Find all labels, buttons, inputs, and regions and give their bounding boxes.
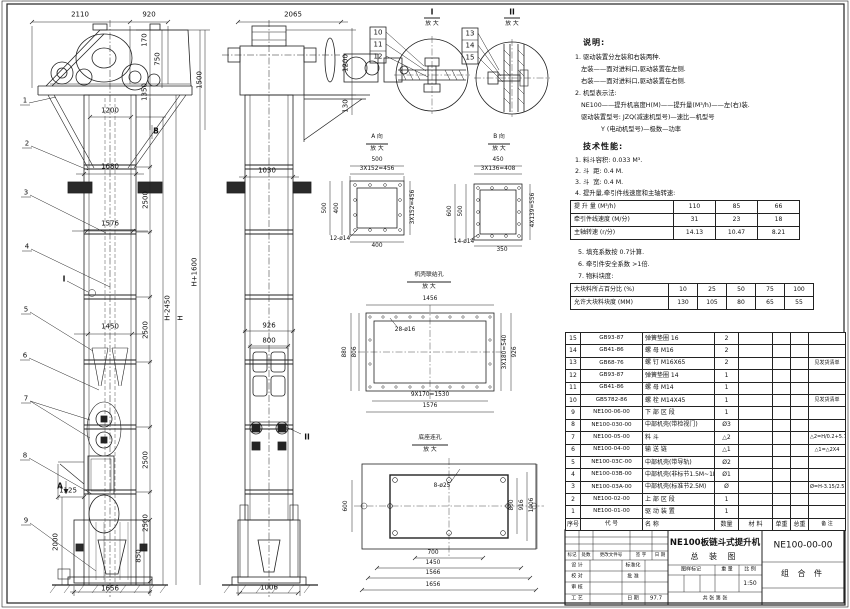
leader-number: 5: [24, 307, 28, 314]
cell: Ø1: [715, 469, 739, 481]
cell: NE100-01-00: [581, 506, 643, 518]
engineering-drawing-sheet: 2110 920 170 750 1350 1500 1200 1680 250…: [0, 0, 850, 609]
cell: [773, 432, 791, 444]
table-row: 13GB68-76螺 钉 M16X652见发货清单: [566, 357, 846, 369]
table-row: 14GB41-86螺 母 M162: [566, 345, 846, 357]
sheet-name: 总 装 图: [690, 553, 739, 561]
cell: [809, 382, 846, 394]
cell: 6: [566, 444, 581, 456]
cell: [791, 444, 809, 456]
cell: [809, 469, 846, 481]
spec-item: 7. 物料块度:: [578, 274, 613, 280]
cell: [791, 333, 809, 345]
note-line: 2. 机型表示法:: [575, 91, 617, 97]
dim-label: 1500: [197, 71, 204, 89]
cell: 1: [715, 506, 739, 518]
dim-label: 1576: [101, 221, 119, 228]
cell: [791, 456, 809, 468]
cell: [809, 333, 846, 345]
dim-label: 500: [323, 202, 329, 213]
dim-label: 806: [353, 346, 359, 357]
cell: 提 升 量 (M³/h): [571, 201, 674, 214]
rev-col-header: 标记: [568, 554, 577, 559]
base-view-title: 底座连孔: [418, 436, 441, 442]
view-mark-a: A: [57, 482, 63, 490]
cell: 名 称: [643, 518, 715, 530]
cell: 材 料: [739, 518, 773, 530]
cell: [739, 407, 773, 419]
cell: [791, 506, 809, 518]
cell: Ø: [715, 481, 739, 493]
cell: 单重: [773, 518, 791, 530]
spec-item: 6. 牵引件安全系数 >1倍.: [578, 262, 650, 268]
dim-label: 1656: [101, 586, 119, 593]
cell: [739, 469, 773, 481]
cell: NE100-03A-00: [581, 481, 643, 493]
cell: [739, 370, 773, 382]
leader-number: 12: [374, 54, 383, 61]
dim-label: 1576: [423, 404, 438, 410]
table-row: 11GB41-86螺 母 M141: [566, 382, 846, 394]
cell: 1: [715, 407, 739, 419]
stamp-header: 重 量: [721, 568, 733, 573]
cell: 1: [715, 382, 739, 394]
role-label: 日 期: [627, 597, 639, 602]
cell: 3: [566, 481, 581, 493]
cell: 23: [716, 214, 758, 227]
cell: 9: [566, 407, 581, 419]
cell: [739, 444, 773, 456]
leader-number: 4: [25, 244, 29, 251]
cell: 5: [566, 456, 581, 468]
cell: [773, 357, 791, 369]
cell: 中部机壳(带导轨): [643, 456, 715, 468]
note-line: 1. 驱动装置分左装和右装两种.: [575, 55, 661, 61]
table-row: 12GB93-87弹簧垫圈 141: [566, 370, 846, 382]
dim-label: 3X180=540: [503, 335, 509, 370]
dim-label: 920: [142, 12, 155, 19]
note-line: Y (电动机型号)—极数—功率: [575, 127, 681, 133]
leader-number: 2: [25, 141, 29, 148]
view-mark-b: B: [153, 127, 159, 135]
cell: 序号: [566, 518, 581, 530]
table-row: 15GB93-87弹簧垫圈 162: [566, 333, 846, 345]
base-view-subtitle: 放 大: [423, 448, 436, 454]
dim-label: 3X152=456: [411, 190, 417, 225]
cell: △2: [715, 432, 739, 444]
cell: 18: [758, 214, 800, 227]
cell: [791, 357, 809, 369]
cell: 80: [727, 297, 756, 310]
cell: 66: [758, 201, 800, 214]
cell: [791, 469, 809, 481]
sheet-count: 共 张 第 张: [703, 597, 728, 602]
spec-item: 1. 料斗容积: 0.033 M³.: [575, 158, 642, 164]
dim-label: 400: [335, 202, 341, 213]
dim-label: 400: [371, 244, 382, 250]
dim-label: 926: [262, 323, 275, 330]
stamp-header: 图样标记: [681, 568, 701, 573]
cell: [791, 345, 809, 357]
dim-label: 450: [492, 158, 503, 164]
cell: 允许大块料块度 (MM): [571, 297, 669, 310]
leader-number: 11: [374, 42, 383, 49]
cell: [739, 357, 773, 369]
table-row: 序号代 号名 称数量材 料单重总重备 注: [566, 518, 846, 530]
cell: 中部机壳(标准节2.5M): [643, 481, 715, 493]
leader-number: 3: [24, 190, 28, 197]
table-row: 3NE100-03A-00中部机壳(标准节2.5M)ØØ=H-3.15/2.5: [566, 481, 846, 493]
cell: 25: [698, 284, 727, 297]
detail-ii-subtitle: 放 大: [505, 22, 518, 28]
role-label: 设 计: [571, 564, 583, 569]
cell: 1: [715, 394, 739, 406]
detail-views-linework: [370, 18, 550, 117]
cell: 螺 栓 M14X45: [643, 394, 715, 406]
cell: [773, 382, 791, 394]
cell: [791, 432, 809, 444]
view-b-subtitle: 放 大: [492, 147, 505, 153]
cell: [809, 345, 846, 357]
dim-label: 12-ø14: [330, 237, 350, 243]
dim-label: 500: [459, 205, 465, 216]
leader-number: 14: [466, 43, 475, 50]
cell: 50: [727, 284, 756, 297]
cell: Ø=H-3.15/2.5: [809, 481, 846, 493]
cell: 10: [566, 394, 581, 406]
cell: [739, 382, 773, 394]
cell: 8: [566, 419, 581, 431]
cell: [739, 494, 773, 506]
dim-label: 500: [371, 158, 382, 164]
cell: 1: [566, 506, 581, 518]
cell: 8.21: [758, 227, 800, 240]
cell: 下 部 区 段: [643, 407, 715, 419]
cell: 12: [566, 370, 581, 382]
dim-label: 1450: [101, 324, 119, 331]
cell: 见发货清单: [809, 357, 846, 369]
cell: 1: [715, 494, 739, 506]
cell: [739, 345, 773, 357]
cell: NE100-02-00: [581, 494, 643, 506]
role-label: 工 艺: [571, 597, 583, 602]
view-mark-ii: II: [304, 433, 310, 441]
dim-label: 1006: [260, 585, 278, 592]
cell: [773, 494, 791, 506]
table-row: 7NE100-05-00料 斗△2△2=H/0.2+5.75: [566, 432, 846, 444]
lump-size-table: 大块料所占百分比 (%)10255075100允许大块料块度 (MM)13010…: [570, 283, 814, 310]
note-line: 左装——面对进料口,驱动装置在左侧.: [575, 67, 686, 73]
spec-item: 2. 斗 距: 0.4 M.: [575, 169, 623, 175]
leader-number: 6: [23, 353, 27, 360]
cell: [739, 506, 773, 518]
dim-label: 1200: [343, 54, 350, 72]
cell: GB41-86: [581, 382, 643, 394]
cell: 中部机壳(非标节1.5M~1M): [643, 469, 715, 481]
cell: 驱 动 装 置: [643, 506, 715, 518]
cell: NE100-06-00: [581, 407, 643, 419]
dim-label: 800: [510, 499, 516, 510]
cell: △2=H/0.2+5.75: [809, 432, 846, 444]
cell: [791, 382, 809, 394]
table-row: 9NE100-06-00下 部 区 段1: [566, 407, 846, 419]
cell: NE100-030-00: [581, 419, 643, 431]
cell: [739, 419, 773, 431]
leader-number: 15: [466, 55, 475, 62]
cell: [773, 407, 791, 419]
cell: 螺 钉 M16X65: [643, 357, 715, 369]
cell: 总重: [791, 518, 809, 530]
cell: 牵引件线速度 (M/分): [571, 214, 674, 227]
scale-value: 1:50: [743, 581, 756, 587]
cell: NE100-03C-00: [581, 456, 643, 468]
view-a-title: A 向: [371, 135, 383, 141]
cell: 弹簧垫圈 14: [643, 370, 715, 382]
cell: [773, 345, 791, 357]
cell: 2: [715, 333, 739, 345]
rev-col-header: 处数: [582, 554, 591, 559]
dim-label: 2500: [143, 321, 150, 339]
table-row: 允许大块料块度 (MM)130105806555: [571, 297, 814, 310]
cell: 11: [566, 382, 581, 394]
dim-label: 750: [155, 52, 162, 65]
casing-view-title: 机壳联结孔: [415, 273, 444, 279]
cell: GB93-87: [581, 333, 643, 345]
dim-label: 1030: [258, 168, 276, 175]
leader-number: 13: [466, 31, 475, 38]
dim-label: 130: [343, 99, 350, 112]
cell: 1: [715, 370, 739, 382]
dim-label: 1350: [142, 83, 149, 101]
leader-number: 10: [374, 30, 383, 37]
cell: 75: [756, 284, 785, 297]
cell: [809, 370, 846, 382]
dim-label: 3X152=456: [360, 167, 395, 173]
cell: △1: [715, 444, 739, 456]
rev-col-header: 更改文件号: [600, 554, 623, 559]
cell: [809, 407, 846, 419]
dim-label: 8-ø25: [434, 484, 451, 490]
cell: 13: [566, 357, 581, 369]
table-row: 1NE100-01-00驱 动 装 置1: [566, 506, 846, 518]
cell: GB41-86: [581, 345, 643, 357]
dim-label: 170: [142, 33, 149, 46]
cell: [739, 333, 773, 345]
date-value: 97.7: [650, 596, 662, 602]
cell: NE100-05-00: [581, 432, 643, 444]
cell: 数量: [715, 518, 739, 530]
cell: [739, 394, 773, 406]
detail-i-title: I: [431, 8, 434, 16]
cell: 主轴转速 (r/分): [571, 227, 674, 240]
dim-label: 3X136=408: [481, 167, 516, 173]
dim-label: 9X170=1530: [411, 393, 449, 399]
dim-label: 600: [448, 205, 454, 216]
cell: 螺 母 M14: [643, 382, 715, 394]
table-row: 大块料所占百分比 (%)10255075100: [571, 284, 814, 297]
cell: 65: [756, 297, 785, 310]
cell: [809, 506, 846, 518]
table-row: 6NE100-04-00输 送 链△1△1=△2X4: [566, 444, 846, 456]
view-mark-i: I: [63, 275, 66, 283]
cell: [809, 419, 846, 431]
table-row: 8NE100-030-00中部机壳(带检视门)Ø3: [566, 419, 846, 431]
dim-label: 916: [520, 499, 526, 510]
dim-label: H-2450: [165, 295, 172, 321]
dim-label: 1680: [101, 164, 119, 171]
stamp-header: 比 例: [744, 568, 756, 573]
leader-number: 9: [24, 518, 28, 525]
dim-label: 1656: [426, 583, 441, 589]
cell: 85: [716, 201, 758, 214]
leader-number: 7: [24, 396, 28, 403]
dim-label: 2065: [284, 12, 302, 19]
table-row: 10GB5782-86螺 栓 M14X451见发货清单: [566, 394, 846, 406]
dim-label: 700: [427, 551, 438, 557]
dim-label: 800: [262, 338, 275, 345]
cell: Ø2: [715, 456, 739, 468]
note-line: 驱动装置型号: JZQ(减速机型号)—速比—机型号: [575, 115, 715, 121]
product-title: NE100板链斗式提升机: [670, 539, 760, 548]
cell: [791, 394, 809, 406]
cell: 螺 母 M16: [643, 345, 715, 357]
cell: GB93-87: [581, 370, 643, 382]
dim-label: 2500: [143, 191, 150, 209]
dim-label: 1456: [423, 297, 438, 303]
cell: GB68-76: [581, 357, 643, 369]
cell: [773, 444, 791, 456]
cell: [773, 419, 791, 431]
spec-item: 3. 斗 宽: 0.4 M.: [575, 180, 623, 186]
cell: 100: [785, 284, 814, 297]
dim-label: 2000: [53, 533, 60, 551]
cell: [773, 456, 791, 468]
notes-heading: 说明:: [583, 39, 605, 47]
role-label: 标准化: [625, 564, 640, 569]
cell: 14.13: [674, 227, 716, 240]
rev-col-header: 签 字: [636, 554, 646, 559]
capacity-table: 提 升 量 (M³/h)1108566牵引件线速度 (M/分)312318主轴转…: [570, 200, 800, 240]
cell: [791, 481, 809, 493]
cell: 输 送 链: [643, 444, 715, 456]
cell: 大块料所占百分比 (%): [571, 284, 669, 297]
cell: NE100-03B-00: [581, 469, 643, 481]
table-row: 4NE100-03B-00中部机壳(非标节1.5M~1M)Ø1: [566, 469, 846, 481]
detail-i-subtitle: 放 大: [425, 22, 438, 28]
cell: 2: [715, 345, 739, 357]
note-line: 右装——面对进料口,驱动装置在右侧.: [575, 79, 686, 85]
cell: [773, 333, 791, 345]
table-row: 主轴转速 (r/分)14.1310.478.21: [571, 227, 800, 240]
dim-label: 926: [513, 346, 519, 357]
leader-number: 1: [23, 98, 27, 105]
spec-item: 4. 提升量,牵引件线速度和主轴转速:: [575, 191, 675, 197]
cell: [773, 370, 791, 382]
cell: 105: [698, 297, 727, 310]
table-row: 提 升 量 (M³/h)1108566: [571, 201, 800, 214]
cell: 31: [674, 214, 716, 227]
cell: [773, 469, 791, 481]
cell: GB5782-86: [581, 394, 643, 406]
cell: 2: [566, 494, 581, 506]
drawing-number: NE100-00-00: [774, 542, 833, 551]
cell: [791, 407, 809, 419]
cell: [773, 481, 791, 493]
leader-number: 8: [23, 453, 27, 460]
cell: 14: [566, 345, 581, 357]
dim-label: 28-ø16: [395, 328, 415, 334]
cell: [809, 494, 846, 506]
spec-item: 5. 填充系数按 0.7计算.: [578, 250, 644, 256]
cell: 中部机壳(带检视门): [643, 419, 715, 431]
cell: 7: [566, 432, 581, 444]
dim-label: H: [178, 315, 185, 320]
cell: 55: [785, 297, 814, 310]
dim-label: 1450: [426, 561, 441, 567]
cell: 4: [566, 469, 581, 481]
dim-label: 1200: [101, 108, 119, 115]
rev-col-header: 日 期: [655, 554, 665, 559]
casing-view-subtitle: 放 大: [422, 285, 435, 291]
cell: [739, 432, 773, 444]
role-label: 校 对: [571, 575, 583, 580]
parts-list-table: 15GB93-87弹簧垫圈 16214GB41-86螺 母 M16213GB68…: [565, 332, 846, 531]
cell: 弹簧垫圈 16: [643, 333, 715, 345]
cell: [791, 370, 809, 382]
cell: [791, 419, 809, 431]
cell: [739, 481, 773, 493]
dim-label: 14-ø14: [454, 240, 474, 246]
cell: [739, 456, 773, 468]
dim-label: 600: [344, 500, 350, 511]
part-type: 组 合 件: [781, 570, 825, 578]
dim-label: 1006: [530, 498, 536, 513]
cell: 料 斗: [643, 432, 715, 444]
note-line: NE100——提升机高度H(M)——提升量(M³/h)——左(右)装.: [575, 103, 750, 109]
cell: Ø3: [715, 419, 739, 431]
detail-ii-title: II: [509, 8, 515, 16]
cell: 见发货清单: [809, 394, 846, 406]
cell: 备 注: [809, 518, 846, 530]
cell: 上 部 区 段: [643, 494, 715, 506]
dim-label: 2500: [143, 451, 150, 469]
table-row: 5NE100-03C-00中部机壳(带导轨)Ø2: [566, 456, 846, 468]
cell: 10.47: [716, 227, 758, 240]
table-row: 牵引件线速度 (M/分)312318: [571, 214, 800, 227]
cell: [809, 456, 846, 468]
table-row: 2NE100-02-00上 部 区 段1: [566, 494, 846, 506]
cell: 130: [669, 297, 698, 310]
dim-label: 2500: [143, 514, 150, 532]
view-a-subtitle: 放 大: [370, 147, 383, 153]
side-view-linework: [222, 20, 408, 597]
cell: NE100-04-00: [581, 444, 643, 456]
cell: △1=△2X4: [809, 444, 846, 456]
dim-label: 1566: [426, 571, 441, 577]
cell: 110: [674, 201, 716, 214]
role-label: 批 准: [627, 575, 639, 580]
cell: 2: [715, 357, 739, 369]
cell: 15: [566, 333, 581, 345]
dim-label: 850: [136, 549, 143, 562]
specs-heading: 技术性能:: [583, 143, 623, 151]
cell: [773, 506, 791, 518]
cell: [773, 394, 791, 406]
cell: [791, 494, 809, 506]
dim-label: 4X139=556: [531, 193, 537, 228]
cell: 10: [669, 284, 698, 297]
dim-label: 350: [496, 248, 507, 254]
